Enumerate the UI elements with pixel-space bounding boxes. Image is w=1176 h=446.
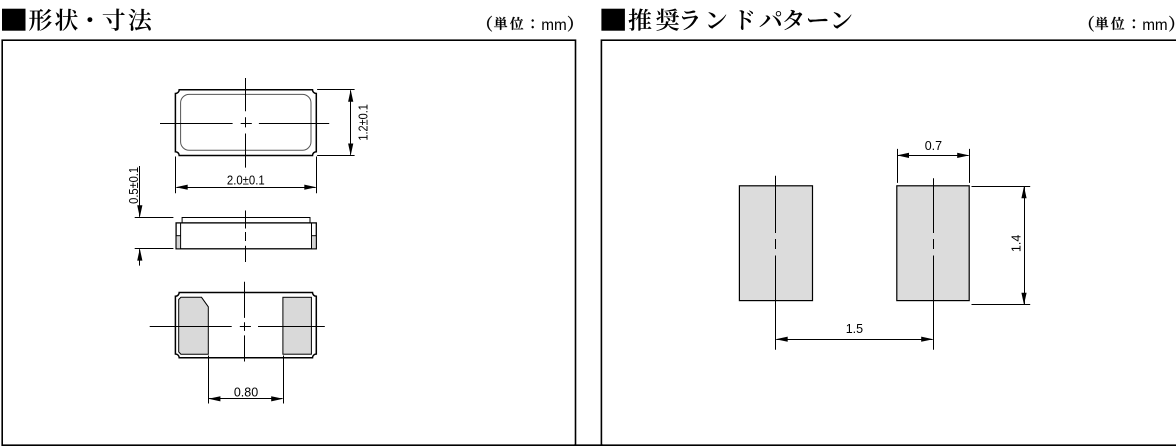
svg-text:1.5: 1.5 (846, 322, 863, 336)
svg-text:mm: mm (1142, 17, 1168, 34)
svg-text:1.2±0.1: 1.2±0.1 (357, 104, 371, 141)
svg-text:0.7: 0.7 (925, 139, 942, 153)
svg-text:0.80: 0.80 (234, 385, 258, 399)
svg-text:0.5±0.1: 0.5±0.1 (127, 167, 141, 204)
svg-text:2.0±0.1: 2.0±0.1 (227, 174, 265, 188)
svg-text:mm: mm (541, 17, 567, 34)
svg-text:1.4: 1.4 (1010, 235, 1024, 252)
